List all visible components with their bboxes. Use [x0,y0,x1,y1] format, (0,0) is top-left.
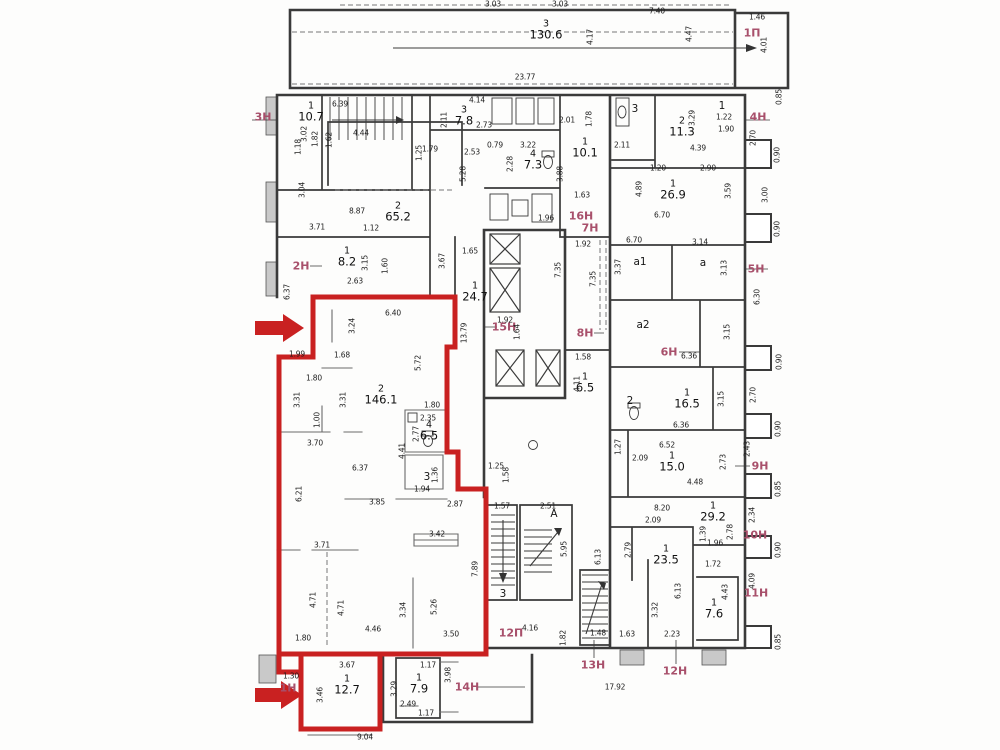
dimension-label: 1.30 [283,672,299,681]
dimension-label: 13.79 [460,323,469,343]
dimension-label: 1.58 [502,467,511,483]
dimension-label: 1.60 [381,258,390,274]
dimension-label: 3.42 [429,530,445,539]
dimension-label: 6.36 [681,352,697,361]
labels-layer: 3130.6110.7265.218.237.847.3110.1211.312… [0,0,1000,750]
room-label: 112.7 [334,674,360,695]
dimension-label: 2.70 [749,387,758,403]
dimension-label: 1.18 [294,139,303,155]
dimension-label: 4.71 [309,592,318,608]
dimension-label: 3.59 [724,183,733,199]
unit-number-label: 3Н [255,111,272,124]
room-label: 37.8 [455,105,473,126]
dimension-label: 0.90 [773,221,782,237]
dimension-label: 1.58 [575,353,591,362]
dimension-label: 5.95 [560,541,569,557]
dimension-label: 3.14 [692,238,708,247]
dimension-label: 3.31 [339,392,348,408]
room-label: 2146.1 [365,384,398,405]
dimension-label: 3.15 [723,324,732,340]
unit-number-label: 1П [744,27,761,40]
dimension-label: 1.27 [614,439,623,455]
zone-letter-label: 3 [632,103,639,115]
dimension-label: 6.70 [654,211,670,220]
unit-number-label: 9Н [752,460,769,473]
dimension-label: 5.26 [430,599,439,615]
dimension-label: 3.71 [314,541,330,550]
dimension-label: 6.52 [659,441,675,450]
room-label: 110.1 [572,137,598,158]
dimension-label: 3.03 [552,0,568,9]
dimension-label: 3.85 [369,498,385,507]
dimension-label: 2.53 [464,148,480,157]
dimension-label: 9.04 [357,733,373,742]
dimension-label: 3.37 [614,259,623,275]
dimension-label: 3.00 [761,187,770,203]
zone-letter-label: 2 [627,395,634,407]
dimension-label: 1.62 [325,132,334,148]
dimension-label: 2.09 [632,454,648,463]
dimension-label: 4.01 [760,37,769,53]
dimension-label: 3.67 [339,661,355,670]
unit-number-label: 8Н [577,327,594,340]
dimension-label: 1.63 [619,630,635,639]
dimension-label: 1.00 [313,412,322,428]
dimension-label: 7.35 [589,271,598,287]
zone-letter-label: 3 [500,588,507,600]
dimension-label: 3.03 [485,0,501,9]
dimension-label: 4.44 [353,129,369,138]
dimension-label: 4.17 [586,29,595,45]
dimension-label: 1.12 [363,224,379,233]
dimension-label: 3.24 [348,318,357,334]
dimension-label: 17.92 [605,683,625,692]
room-label: 126.9 [660,179,686,200]
dimension-label: 4.11 [573,376,582,392]
dimension-label: 2.49 [400,700,416,709]
dimension-label: 2.01 [559,116,575,125]
dimension-label: 1.82 [559,630,568,646]
dimension-label: 1.46 [749,13,765,22]
dimension-label: 4.16 [522,624,538,633]
room-label: 18.2 [338,246,356,267]
dimension-label: 3.13 [720,260,729,276]
dimension-label: 1.17 [420,661,436,670]
zone-letter-label: а2 [636,319,649,331]
dimension-label: 6.30 [753,289,762,305]
room-label: 265.2 [385,201,411,222]
dimension-label: 5.28 [459,166,468,182]
dimension-label: 7.89 [471,561,480,577]
dimension-label: 4.89 [635,181,644,197]
dimension-label: 1.20 [650,164,666,173]
dimension-label: 7.40 [649,7,665,16]
dimension-label: 1.68 [334,351,350,360]
dimension-label: 1.65 [462,247,478,256]
dimension-label: 4.43 [721,584,730,600]
dimension-label: 2.70 [749,130,758,146]
dimension-label: 6.36 [673,421,689,430]
dimension-label: 2.79 [624,542,633,558]
unit-number-label: 1Н [280,682,297,695]
dimension-label: 2.11 [614,141,630,150]
unit-number-label: 5Н [748,263,765,276]
dimension-label: 3.15 [361,255,370,271]
dimension-label: 6.37 [352,464,368,473]
dimension-label: 2.23 [664,630,680,639]
room-label: 46.5 [420,420,438,441]
dimension-label: 1.63 [574,191,590,200]
room-label: 110.7 [298,101,324,122]
dimension-label: 5.72 [414,355,423,371]
zone-letter-label: а1 [633,256,646,268]
dimension-label: 1.92 [575,240,591,249]
dimension-label: 7.35 [554,262,563,278]
dimension-label: 1.80 [424,401,440,410]
dimension-label: 2.09 [645,516,661,525]
dimension-label: 4.47 [685,26,694,42]
dimension-label: 1.48 [590,629,606,638]
dimension-label: 1.80 [306,374,322,383]
dimension-label: 2.63 [347,277,363,286]
dimension-label: 0.85 [775,89,784,105]
room-label: 123.5 [653,544,679,565]
dimension-label: 2.43 [743,441,752,457]
dimension-label: 1.25 [415,145,424,161]
dimension-label: 3.46 [316,687,325,703]
dimension-label: 2.28 [506,156,515,172]
room-label: 47.3 [524,149,542,170]
dimension-label: 2.34 [748,507,757,523]
dimension-label: 6.13 [594,549,603,565]
dimension-label: 2.51 [540,502,556,511]
dimension-label: 4.41 [398,443,407,459]
dimension-label: 6.40 [385,309,401,318]
unit-number-label: 13Н [581,659,606,672]
unit-number-label: 2Н [293,260,310,273]
dimension-label: 0.79 [487,141,503,150]
unit-number-label: 14Н [455,681,480,694]
dimension-label: 3.88 [556,166,565,182]
dimension-label: 3.29 [390,681,399,697]
dimension-label: 1.96 [707,539,723,548]
dimension-label: 0.90 [775,354,784,370]
dimension-label: 1.22 [716,113,732,122]
dimension-label: 1.57 [494,502,510,511]
dimension-label: 6.21 [295,486,304,502]
dimension-label: 8.20 [654,504,670,513]
dimension-label: 1.90 [718,125,734,134]
dimension-label: 0.90 [774,421,783,437]
dimension-label: 2.87 [447,500,463,509]
dimension-label: 8.87 [349,207,365,216]
dimension-label: 2.90 [700,164,716,173]
dimension-label: 1.79 [422,145,438,154]
floor-plan-canvas: 3130.6110.7265.218.237.847.3110.1211.312… [0,0,1000,750]
dimension-label: 0.90 [774,542,783,558]
unit-number-label: 10Н [743,529,768,542]
dimension-label: 6.70 [626,236,642,245]
unit-number-label: 12Н [663,665,688,678]
room-label: 115.0 [659,451,685,472]
dimension-label: 4.71 [337,600,346,616]
dimension-label: 1.80 [295,634,311,643]
dimension-label: 1.36 [431,467,440,483]
dimension-label: 0.90 [773,147,782,163]
dimension-label: 3.34 [399,602,408,618]
dimension-label: 1.92 [497,316,513,325]
dimension-label: 4.09 [748,573,757,589]
dimension-label: 3.15 [717,391,726,407]
room-label: 129.2 [700,501,726,522]
dimension-label: 3.29 [688,110,697,126]
dimension-label: 1.99 [289,350,305,359]
unit-number-label: 4Н [750,111,767,124]
dimension-label: 3.70 [307,439,323,448]
dimension-label: 1.96 [538,214,554,223]
room-label: 3130.6 [530,19,563,40]
dimension-label: 0.85 [774,634,783,650]
dimension-label: 4.46 [365,625,381,634]
room-label: 17.9 [410,673,428,694]
dimension-label: 6.37 [283,284,292,300]
dimension-label: 0.85 [774,481,783,497]
dimension-label: 3.22 [520,141,536,150]
unit-number-label: 12П [499,627,524,640]
dimension-label: 2.73 [476,121,492,130]
dimension-label: 4.39 [690,144,706,153]
dimension-label: 1.64 [513,324,522,340]
zone-letter-label: а [700,257,706,269]
dimension-label: 1.78 [585,111,594,127]
dimension-label: 3.71 [309,223,325,232]
unit-number-label: 7Н [582,222,599,235]
dimension-label: 2.78 [726,524,735,540]
dimension-label: 2.11 [440,112,449,128]
unit-number-label: 6Н [661,346,678,359]
zone-letter-label: 1 [719,100,726,112]
dimension-label: 3.98 [444,667,453,683]
dimension-label: 3.67 [438,253,447,269]
dimension-label: 1.82 [311,131,320,147]
room-label: 116.5 [674,388,700,409]
room-label: 124.7 [462,281,488,302]
dimension-label: 2.77 [412,426,421,442]
zone-letter-label: 3 [424,471,431,483]
room-label: 17.6 [705,598,723,619]
dimension-label: 6.13 [674,583,683,599]
dimension-label: 3.04 [298,182,307,198]
dimension-label: 3.31 [293,392,302,408]
dimension-label: 6.39 [332,100,348,109]
dimension-label: 4.14 [469,96,485,105]
dimension-label: 3.50 [443,630,459,639]
dimension-label: 2.73 [719,454,728,470]
dimension-label: 23.77 [515,73,535,82]
dimension-label: 3.32 [651,602,660,618]
dimension-label: 4.48 [687,478,703,487]
dimension-label: 2.35 [420,414,436,423]
dimension-label: 1.72 [705,560,721,569]
dimension-label: 1.17 [418,709,434,718]
dimension-label: 1.94 [414,485,430,494]
